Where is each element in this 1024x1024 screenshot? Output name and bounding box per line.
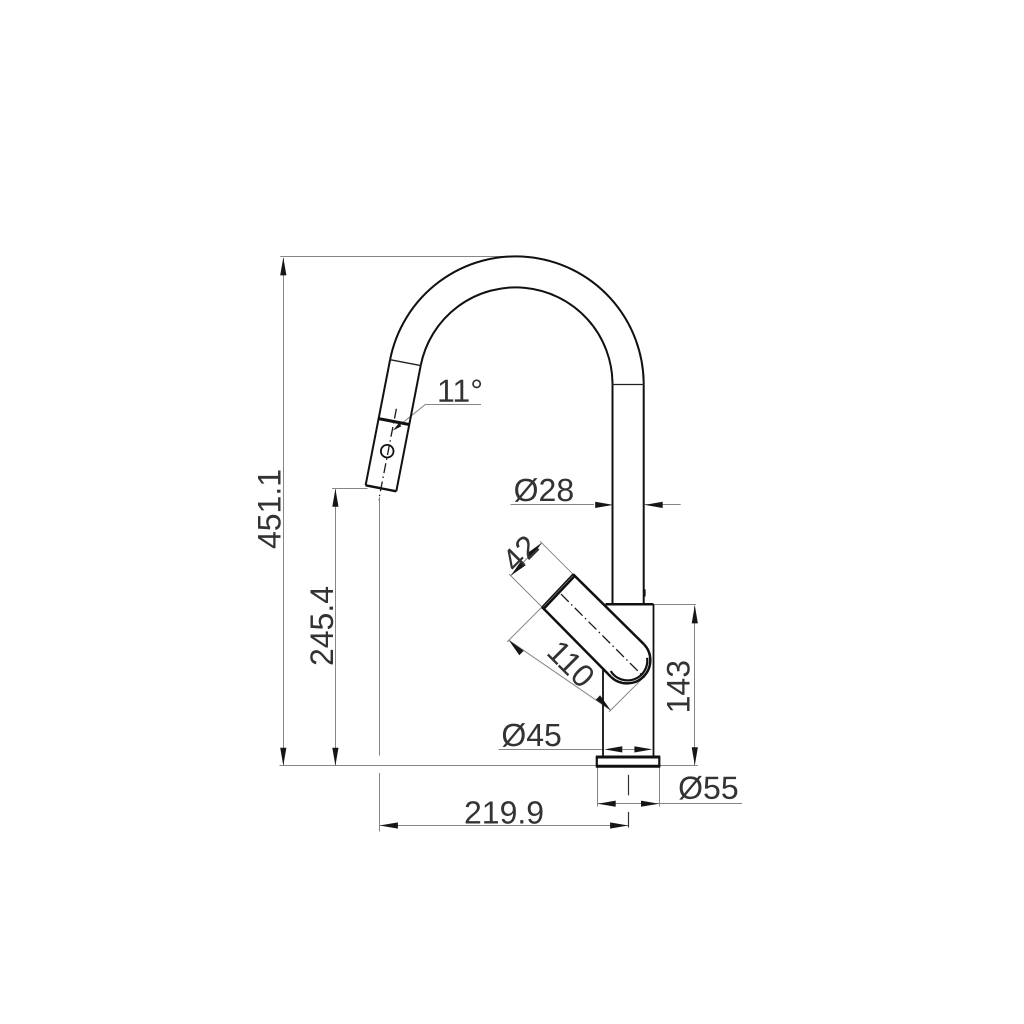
svg-text:Ø45: Ø45 bbox=[501, 717, 561, 753]
svg-text:451.1: 451.1 bbox=[252, 469, 288, 549]
svg-text:245.4: 245.4 bbox=[304, 586, 340, 666]
svg-text:11°: 11° bbox=[437, 373, 483, 409]
svg-text:Ø55: Ø55 bbox=[678, 770, 738, 806]
svg-text:219.9: 219.9 bbox=[464, 794, 544, 830]
svg-text:143: 143 bbox=[661, 660, 697, 713]
svg-text:Ø28: Ø28 bbox=[514, 472, 574, 508]
